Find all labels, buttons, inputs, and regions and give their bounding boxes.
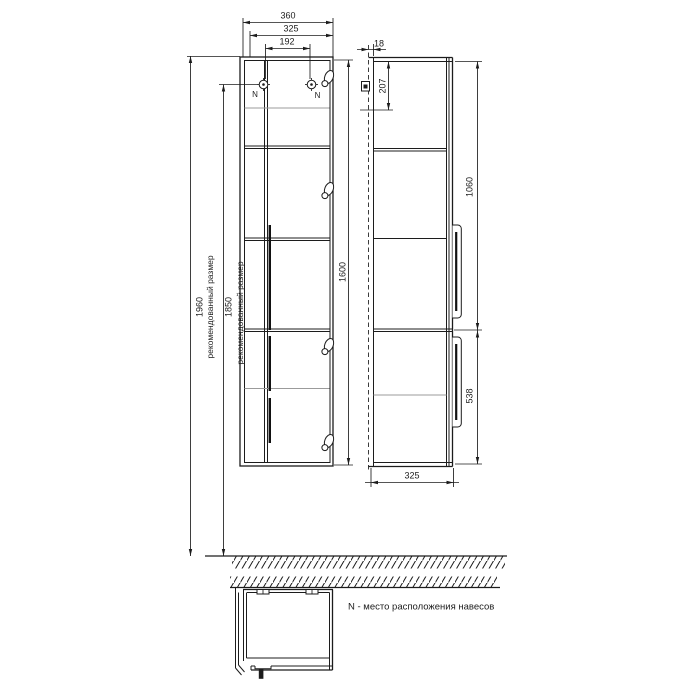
dim-total-width: 360 — [280, 12, 295, 21]
lower-door-handle — [453, 337, 462, 427]
dim-hanger-offset-top: 207 — [379, 78, 388, 93]
dim-cabinet-height: 1600 — [338, 262, 347, 282]
dim-recommended-total-height: 1960 — [195, 297, 204, 317]
dim-upper-door-height: 1060 — [466, 177, 475, 197]
hanger-marker-right: N — [315, 92, 321, 100]
plan-hanger-bracket — [257, 590, 269, 595]
plan-door-handle — [255, 666, 271, 679]
dim-depth: 325 — [404, 472, 419, 481]
drawing-linework — [0, 0, 700, 700]
side-view — [362, 45, 462, 470]
plan-hanger-bracket — [306, 590, 318, 595]
dim-door-width: 325 — [283, 25, 298, 34]
hanger-bracket-side — [362, 82, 370, 92]
hanger-marker-left: N — [252, 91, 258, 99]
dimension-lines — [187, 18, 482, 556]
recommended-size-label: рекомендованный размер — [235, 261, 244, 364]
plan-view — [236, 588, 334, 679]
dim-wall-gap: 18 — [374, 39, 384, 48]
dim-lower-door-height: 538 — [465, 388, 474, 403]
floor-line — [205, 556, 507, 569]
recommended-size-label: рекомендованный размер — [205, 255, 214, 358]
front-view — [240, 57, 335, 466]
hanger-location-note: N - место расположения навесов — [348, 602, 494, 613]
dim-hanger-spacing: 192 — [279, 38, 294, 47]
upper-door-handle — [453, 225, 462, 318]
wall-line — [230, 577, 500, 588]
dim-recommended-hanger-height: 1850 — [225, 297, 234, 317]
cabinet-technical-drawing: 360 325 192 18 207 1960 рекомендованный … — [0, 0, 700, 700]
